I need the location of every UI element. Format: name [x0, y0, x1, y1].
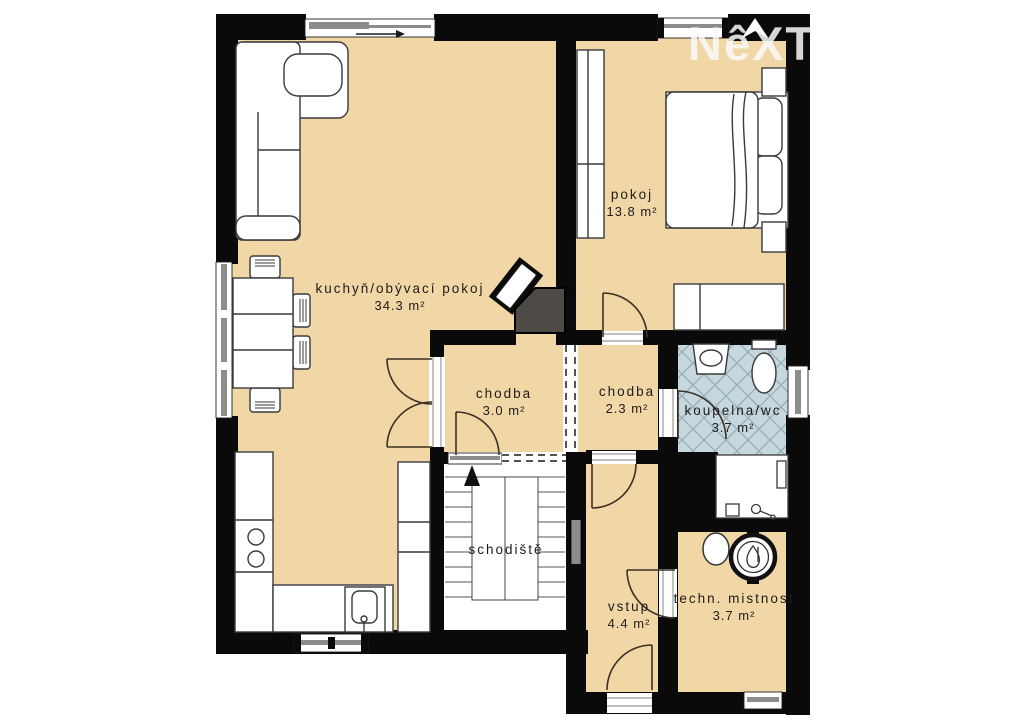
room-name: chodba [476, 385, 532, 402]
room-name: kuchyň/obývací pokoj [315, 280, 484, 297]
double-bed [666, 92, 788, 228]
bathtub-area [716, 455, 788, 519]
room-name: chodba [599, 383, 655, 400]
opening-entrance [607, 693, 652, 713]
room-area: 3.7 m² [684, 419, 781, 436]
room-label-staircase: schodiště [468, 541, 543, 558]
room-name: vstup [608, 598, 651, 615]
desk [674, 284, 784, 330]
window-bathroom-right [788, 366, 808, 418]
room-area: 3.7 m² [674, 607, 795, 624]
boiler [703, 533, 729, 565]
room-area: 13.8 m² [606, 203, 657, 220]
window-bedroom-top [658, 18, 728, 38]
room-name: koupelna/wc [684, 402, 781, 419]
room-name: techn. mistnost [674, 590, 795, 607]
room-label-bathroom-wc: koupelna/wc 3.7 m² [684, 402, 781, 436]
room-label-bedroom: pokoj 13.8 m² [606, 186, 657, 220]
window-kitchen-bottom [294, 634, 368, 652]
radiator [569, 515, 583, 569]
dining-table [233, 278, 293, 388]
room-label-utility-room: techn. mistnost 3.7 m² [674, 590, 795, 624]
window-utility-bottom [744, 692, 782, 709]
room-area: 34.3 m² [315, 297, 484, 314]
room-label-hallway-2: chodba 2.3 m² [599, 383, 655, 417]
room-name: pokoj [606, 186, 657, 203]
room-label-entry: vstup 4.4 m² [608, 598, 651, 632]
nightstand [762, 68, 786, 96]
kitchen-sink [345, 587, 385, 632]
room-area: 2.3 m² [599, 400, 655, 417]
opening-hall2-entry [592, 451, 636, 464]
wardrobe [577, 50, 604, 238]
chair [250, 388, 280, 412]
room-area: 4.4 m² [608, 615, 651, 632]
washbasin [693, 344, 729, 374]
opening-bathroom [659, 389, 677, 437]
chair [250, 256, 280, 278]
room-name: schodiště [468, 541, 543, 558]
room-label-hallway-1: chodba 3.0 m² [476, 385, 532, 419]
window-left [216, 262, 232, 418]
floor-plan: kuchyň/obývací pokoj 34.3 m² pokoj 13.8 … [0, 0, 1024, 727]
tall-cabinet [398, 462, 430, 632]
chair [293, 294, 310, 327]
room-label-kitchen-living: kuchyň/obývací pokoj 34.3 m² [315, 280, 484, 314]
chair [293, 336, 310, 369]
opening-hall2-bedroom [602, 331, 643, 345]
room-area: 3.0 m² [476, 402, 532, 419]
toilet [752, 340, 776, 393]
nightstand [762, 222, 786, 252]
